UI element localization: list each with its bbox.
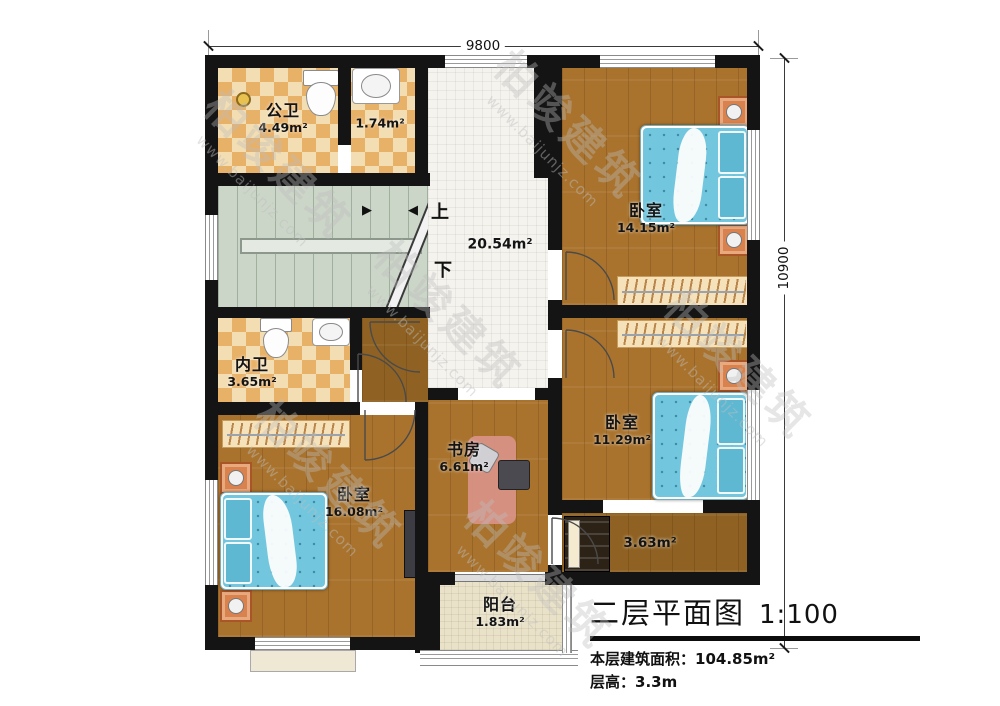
label-inner-bath: 内卫 3.65m² — [227, 355, 276, 389]
plan-title: 二层平面图 — [590, 596, 745, 630]
stair-arrow-icon: ◀ — [408, 204, 418, 217]
label-public-bath: 公卫 4.49m² — [258, 101, 307, 135]
label-corridor: 3.63m² — [623, 535, 676, 551]
stair-arrow-icon: ▶ — [362, 204, 372, 217]
label-study: 书房 6.61m² — [439, 440, 488, 474]
label-bedroom-ne: 卧室 14.15m² — [617, 201, 675, 235]
door-vestibule — [370, 322, 420, 372]
label-small-bath: 1.74m² — [355, 116, 404, 131]
door-bedroom-e — [566, 330, 614, 378]
title-block: 二层平面图1:100 本层建筑面积：104.85m² 层高：3.3m — [590, 590, 920, 693]
plan-title-row: 二层平面图1:100 — [590, 590, 920, 632]
floor-area-line: 本层建筑面积：104.85m² — [590, 648, 920, 671]
door-inner-bath — [358, 354, 406, 402]
door-bedroom-ne — [566, 252, 614, 300]
label-stairs-up: 上 — [431, 198, 449, 224]
floor-plan-canvas: ▶ ◀ 公卫 4.49m² 1.74m² 20.54m² 上 下 卧室 14.1… — [0, 0, 1000, 706]
label-hallway: 20.54m² — [467, 237, 532, 254]
door-corridor — [552, 518, 598, 564]
label-stairs-down: 下 — [434, 256, 452, 282]
label-bedroom-sw: 卧室 16.08m² — [325, 485, 383, 519]
label-balcony: 阳台 1.83m² — [475, 595, 524, 629]
label-bedroom-e: 卧室 11.29m² — [593, 413, 651, 447]
floor-height-line: 层高：3.3m — [590, 671, 920, 694]
plan-scale: 1:100 — [759, 600, 839, 630]
door-bedroom-sw — [365, 410, 415, 460]
title-underline — [590, 636, 920, 641]
